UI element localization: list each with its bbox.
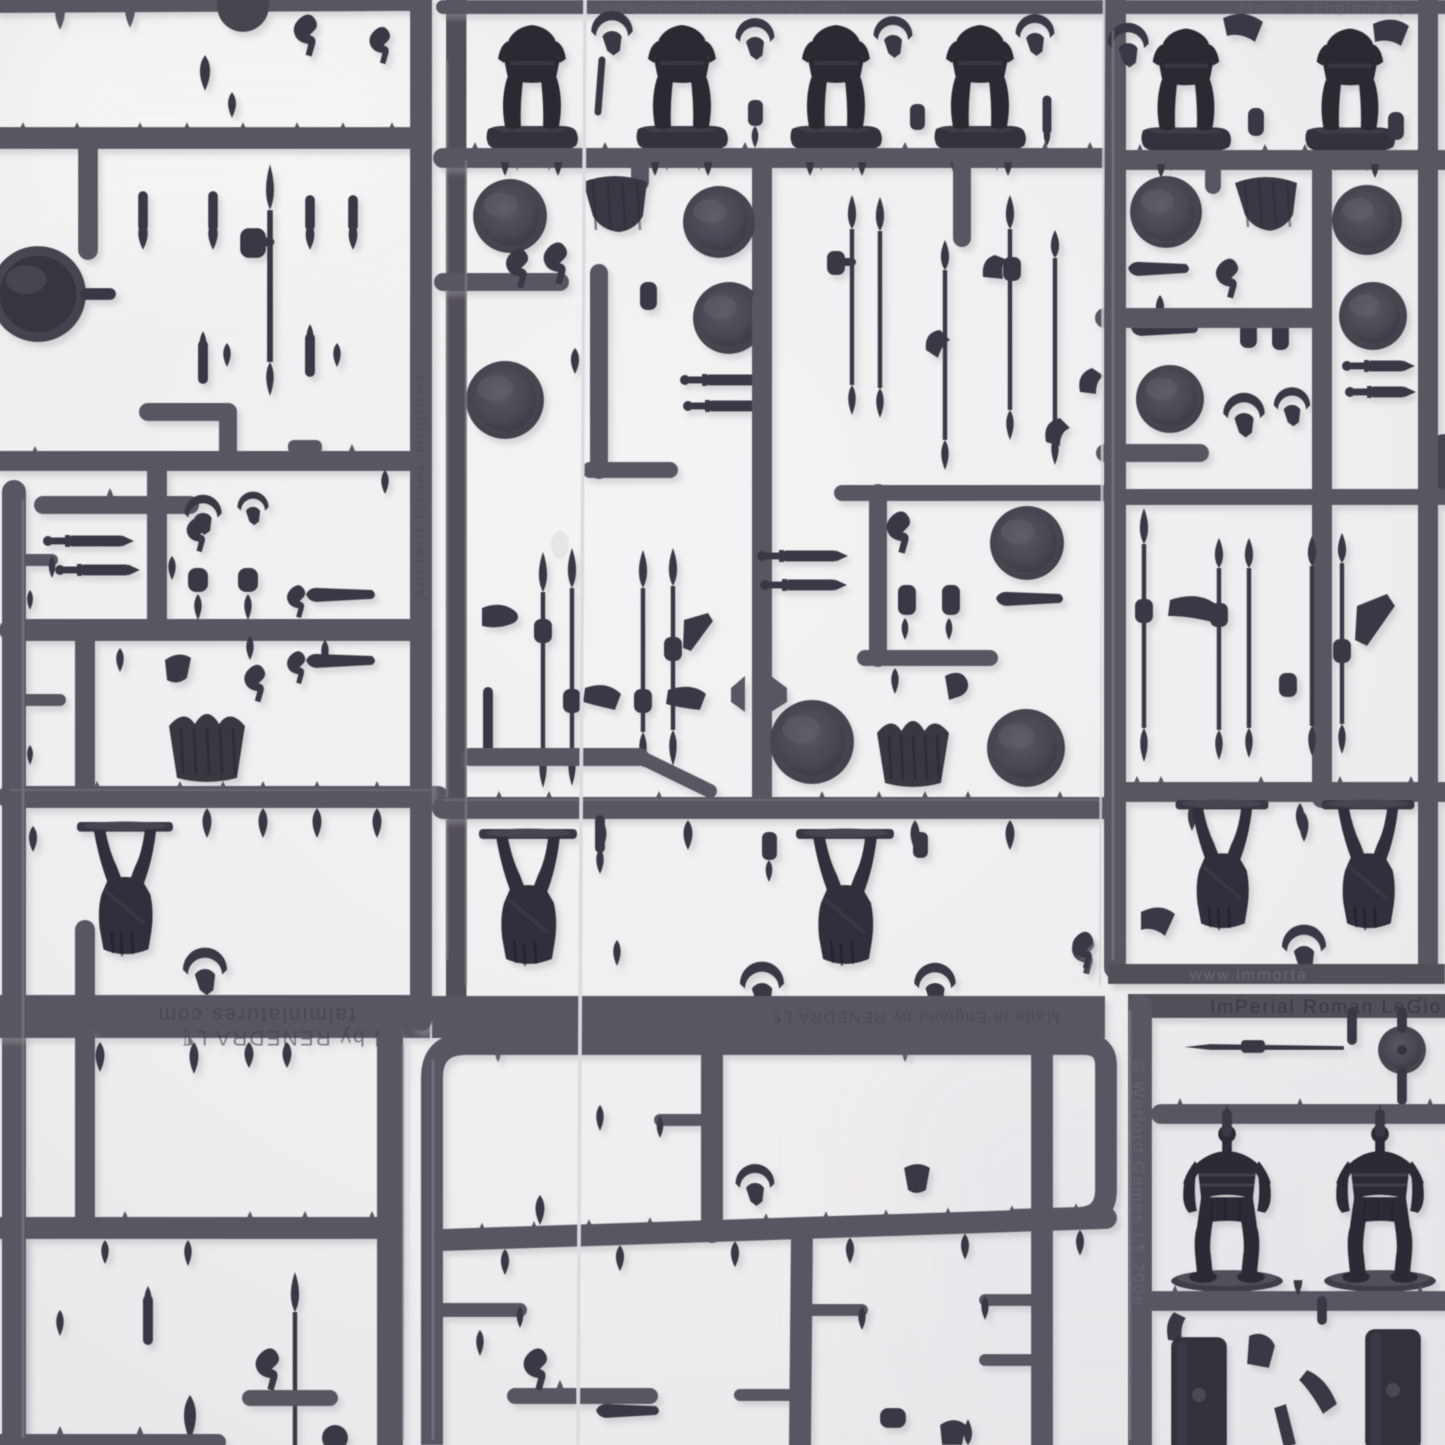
svg-text:Ancient Greek Hoplites: Ancient Greek Hoplites — [411, 372, 431, 600]
svg-text:Made in England by: Made in England by — [1240, 0, 1409, 17]
svg-text:ImPerial Roman LeƓio: ImPerial Roman LeƓio — [1210, 997, 1442, 1018]
svg-text:www.immortalminiatures.com: www.immortalminiatures.com — [599, 0, 847, 17]
svg-text:© Warlord Games L¶ 2008: © Warlord Games L¶ 2008 — [1129, 1060, 1148, 1308]
svg-text:Made in England by RENEDRA L¶: Made in England by RENEDRA L¶ — [771, 1008, 1060, 1025]
svg-text:www.immorta: www.immorta — [1189, 967, 1308, 984]
svg-text:nd by RENEDRA L¶: nd by RENEDRA L¶ — [180, 1026, 400, 1049]
svg-text:talminiatures.com: talminiatures.com — [156, 1003, 355, 1026]
